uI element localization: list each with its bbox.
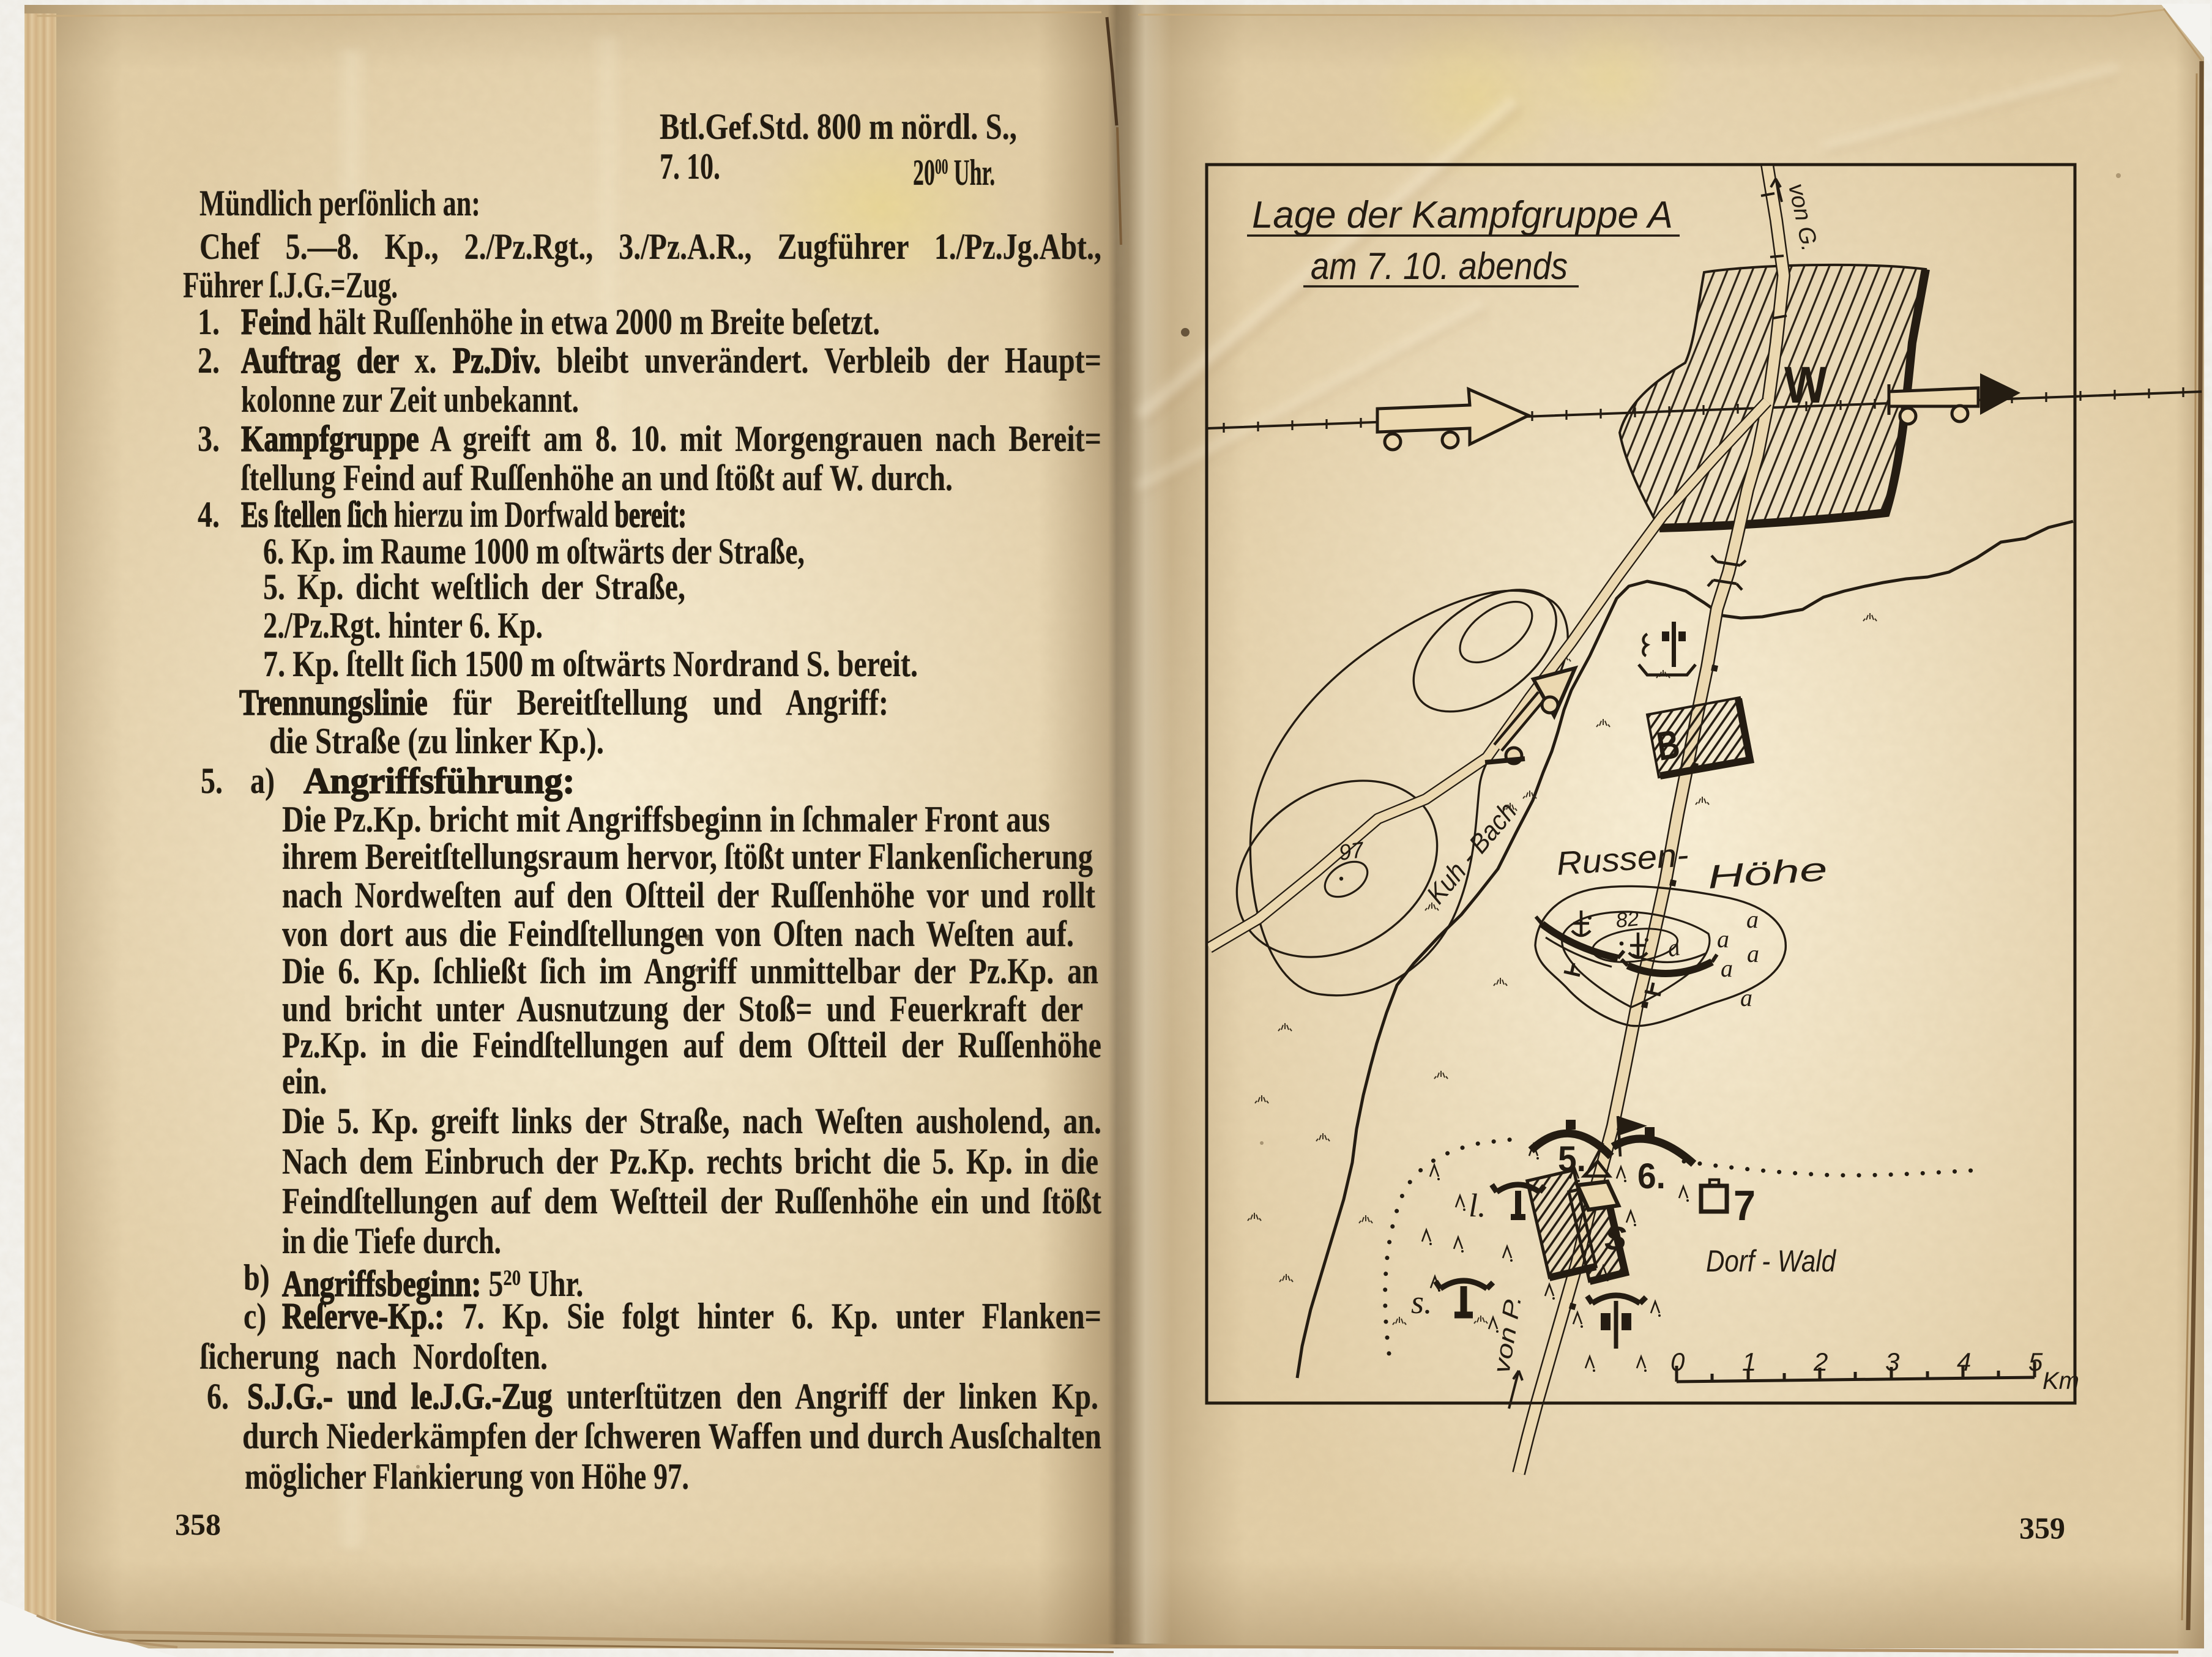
svg-text:von G.: von G.	[1783, 181, 1822, 253]
svg-text:a: a	[1746, 906, 1759, 933]
svg-text:Dorf - Wald: Dorf - Wald	[1706, 1244, 1837, 1278]
svg-text:l.: l.	[1469, 1187, 1486, 1224]
svg-text:W: W	[1784, 356, 1828, 414]
svg-text:6.: 6.	[1637, 1156, 1666, 1196]
svg-text:a: a	[1717, 925, 1729, 953]
svg-text:4: 4	[1957, 1347, 1971, 1376]
svg-text:5: 5	[2028, 1347, 2043, 1376]
svg-text:a: a	[1747, 940, 1759, 967]
svg-text:7: 7	[1733, 1182, 1756, 1229]
svg-text:97: 97	[1337, 836, 1366, 865]
svg-text:a: a	[1721, 955, 1733, 982]
svg-text:von P.: von P.	[1489, 1294, 1527, 1375]
svg-text:3: 3	[1885, 1347, 1899, 1376]
svg-text:Höhe: Höhe	[1707, 851, 1829, 896]
svg-text:am 7. 10. abends: am 7. 10. abends	[1311, 245, 1568, 288]
svg-text:s.: s.	[1411, 1284, 1432, 1320]
svg-text:a: a	[1665, 933, 1683, 963]
svg-text:82: 82	[1615, 907, 1640, 933]
svg-text:a: a	[1740, 984, 1752, 1011]
svg-text:2: 2	[1813, 1347, 1828, 1376]
svg-text:S: S	[1604, 1220, 1626, 1257]
svg-text:Lage der Kampfgruppe A: Lage der Kampfgruppe A	[1252, 194, 1673, 236]
svg-text:1: 1	[1742, 1347, 1756, 1376]
svg-text:0: 0	[1670, 1347, 1685, 1376]
